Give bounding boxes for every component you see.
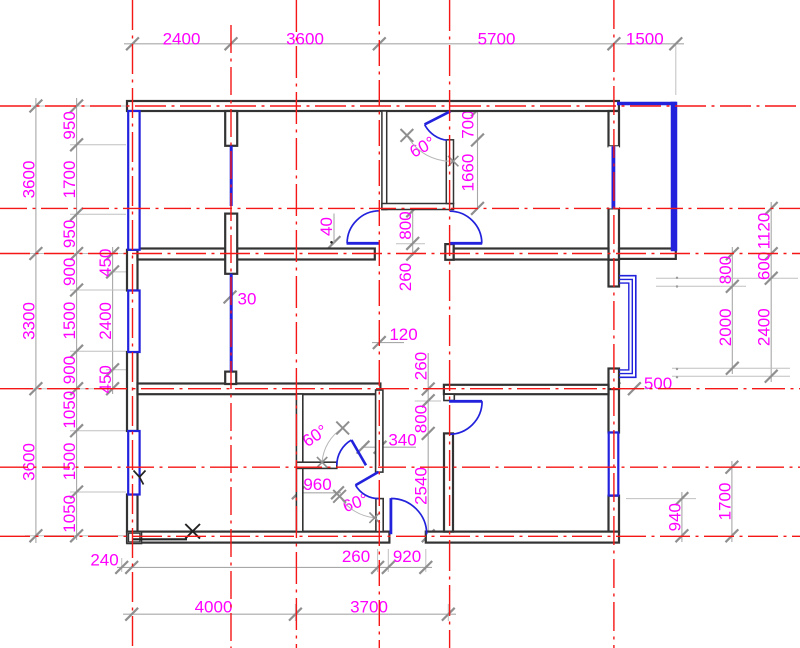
svg-text:1660: 1660 [459, 154, 478, 192]
svg-text:340: 340 [388, 431, 416, 450]
svg-text:1500: 1500 [60, 302, 79, 340]
svg-text:960: 960 [303, 475, 331, 494]
svg-text:260: 260 [342, 547, 370, 566]
svg-text:1700: 1700 [60, 161, 79, 199]
svg-text:60°: 60° [407, 133, 439, 162]
svg-text:800: 800 [396, 211, 415, 239]
svg-text:120: 120 [389, 325, 417, 344]
svg-text:3600: 3600 [19, 161, 38, 199]
svg-text:950: 950 [60, 111, 79, 139]
svg-text:3700: 3700 [350, 598, 388, 617]
svg-text:450: 450 [96, 249, 115, 277]
svg-text:260: 260 [412, 352, 431, 380]
svg-text:920: 920 [393, 547, 421, 566]
svg-text:5700: 5700 [478, 29, 516, 48]
svg-text:700: 700 [459, 110, 478, 138]
svg-text:940: 940 [665, 503, 684, 531]
svg-text:40: 40 [317, 217, 336, 236]
svg-text:800: 800 [716, 256, 735, 284]
svg-text:2400: 2400 [755, 308, 774, 346]
svg-text:2400: 2400 [163, 29, 201, 48]
svg-text:3600: 3600 [19, 443, 38, 481]
svg-text:950: 950 [60, 220, 79, 248]
svg-text:1050: 1050 [60, 391, 79, 429]
svg-text:600: 600 [755, 252, 774, 280]
svg-text:1500: 1500 [60, 442, 79, 480]
svg-text:260: 260 [396, 263, 415, 291]
svg-text:2400: 2400 [96, 302, 115, 340]
svg-text:1700: 1700 [715, 483, 734, 521]
svg-text:500: 500 [644, 374, 672, 393]
svg-text:900: 900 [60, 258, 79, 286]
svg-text:3600: 3600 [286, 29, 324, 48]
svg-text:2000: 2000 [716, 308, 735, 346]
svg-text:1120: 1120 [755, 213, 774, 250]
svg-text:4000: 4000 [195, 598, 233, 617]
svg-text:240: 240 [90, 551, 118, 570]
svg-text:30: 30 [238, 290, 257, 309]
svg-text:800: 800 [411, 405, 430, 433]
svg-text:3300: 3300 [19, 302, 38, 340]
svg-text:900: 900 [60, 356, 79, 384]
svg-text:1050: 1050 [60, 495, 79, 533]
svg-text:2540: 2540 [411, 467, 430, 505]
svg-text:1500: 1500 [626, 29, 664, 48]
